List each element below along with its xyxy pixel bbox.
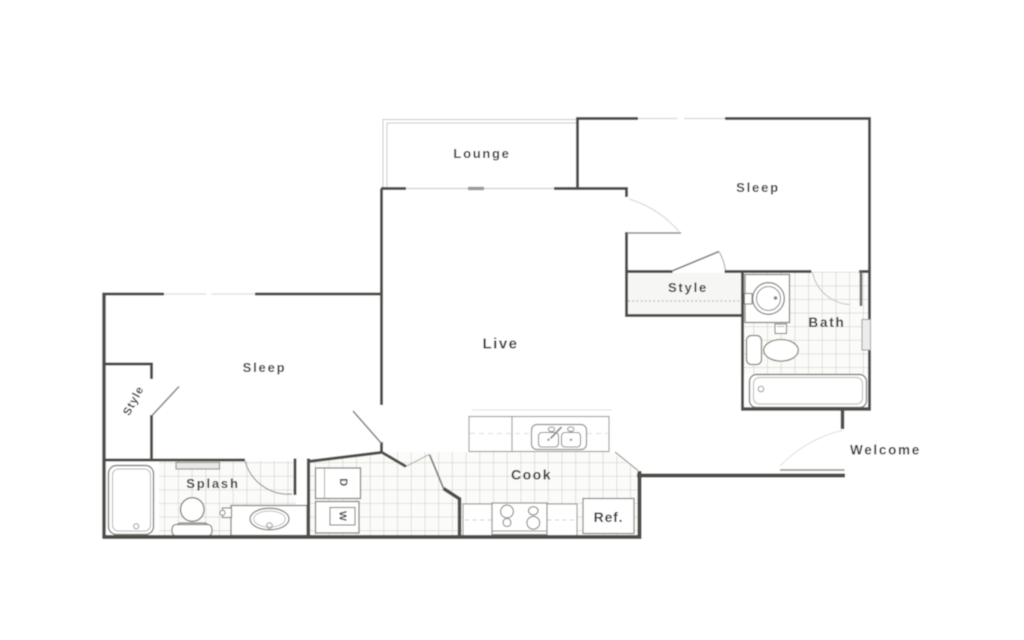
svg-text:Welcome: Welcome xyxy=(850,443,921,458)
svg-text:Sleep: Sleep xyxy=(736,180,780,195)
svg-text:Live: Live xyxy=(482,336,518,353)
svg-text:Cook: Cook xyxy=(511,467,552,483)
svg-text:W: W xyxy=(337,511,349,521)
svg-text:D: D xyxy=(337,478,349,486)
svg-text:Lounge: Lounge xyxy=(453,146,510,161)
svg-text:Bath: Bath xyxy=(808,315,845,330)
svg-text:Splash: Splash xyxy=(186,476,239,491)
svg-text:Sleep: Sleep xyxy=(243,360,287,375)
svg-text:Ref.: Ref. xyxy=(594,509,624,525)
svg-text:Style: Style xyxy=(668,280,708,295)
